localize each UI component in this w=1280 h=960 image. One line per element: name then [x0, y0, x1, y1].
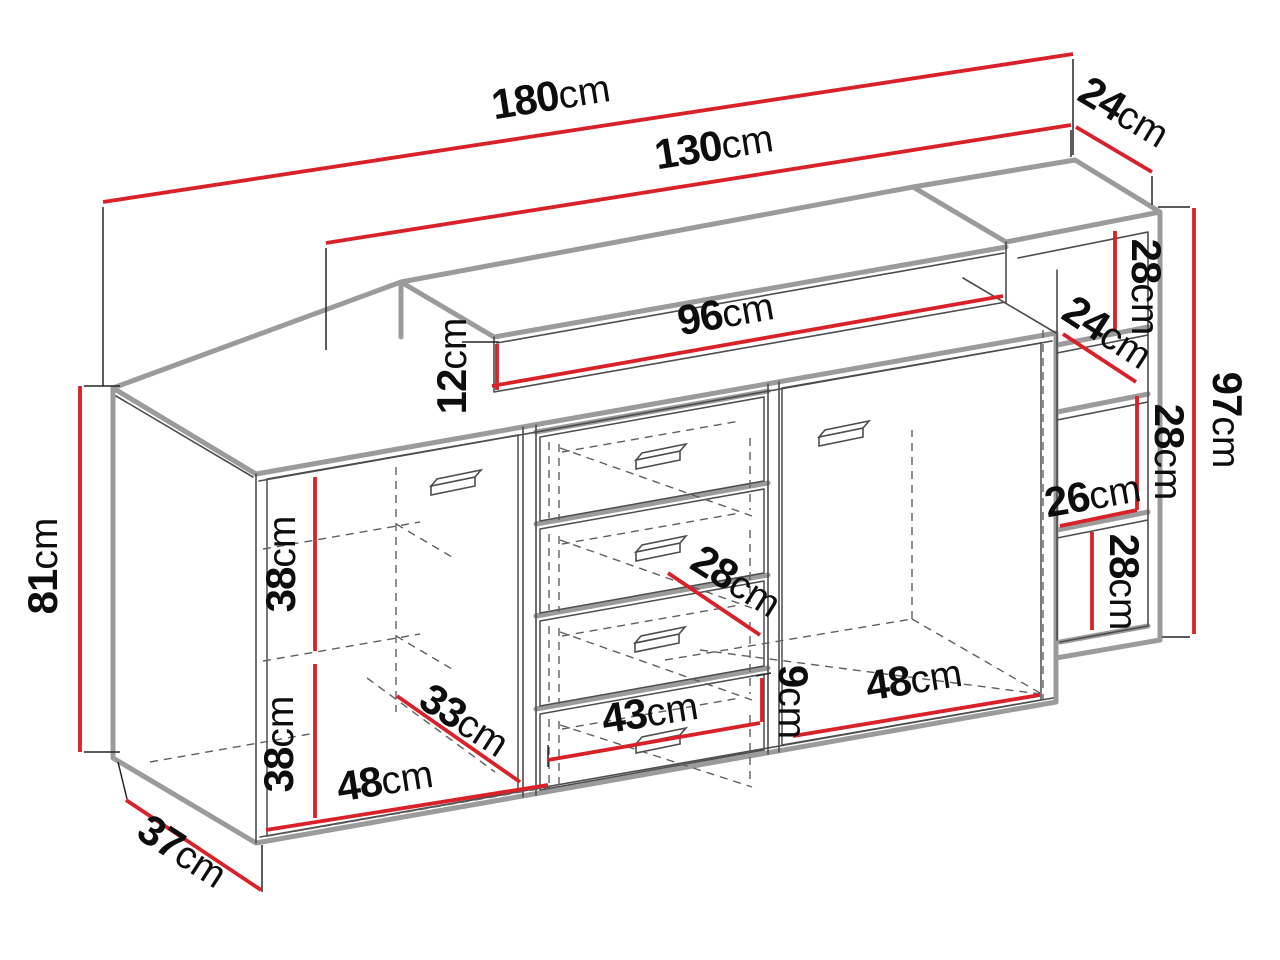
- dim-label-top-shelf-height: 12cm: [428, 318, 475, 415]
- dim-label-right-total-height: 97cm: [1204, 372, 1251, 469]
- furniture-dimension-diagram: 180cm 130cm 24cm 28cm 24cm 97cm 28cm 26c…: [0, 0, 1280, 960]
- dim-label-right-middle-compartment: 28cm: [1146, 404, 1193, 501]
- dim-label-right-lower-compartment: 28cm: [1101, 534, 1148, 631]
- dim-label-left-lower-compartment: 38cm: [255, 696, 302, 793]
- diagram-canvas: 180cm 130cm 24cm 28cm 24cm 97cm 28cm 26c…: [0, 0, 1280, 960]
- dim-label-left-height: 81cm: [19, 518, 66, 615]
- dim-label-right-top-compartment: 28cm: [1123, 239, 1170, 336]
- dim-label-drawer-bottom-height: 9cm: [770, 665, 817, 739]
- dim-label-left-upper-compartment: 38cm: [257, 516, 304, 613]
